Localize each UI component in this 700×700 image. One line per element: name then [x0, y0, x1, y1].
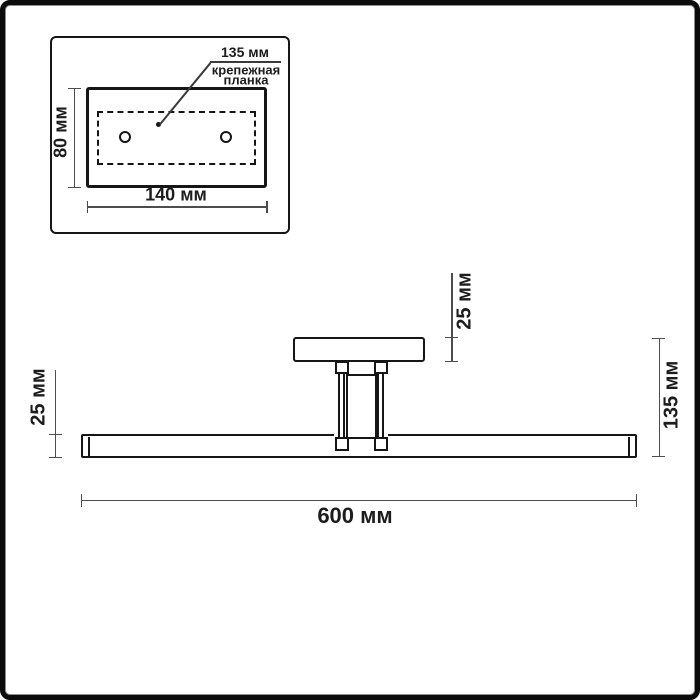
canopy: [293, 337, 425, 362]
dim-line: [87, 206, 267, 208]
bar-height-label: 25 мм: [28, 368, 51, 425]
dim-line: [451, 273, 453, 362]
dim-tick: [636, 494, 638, 507]
bracket-stem-right: [377, 373, 384, 439]
bracket-flange-top-left: [335, 361, 349, 374]
mounting-hole-left: [119, 131, 131, 143]
dim-line: [81, 500, 637, 502]
bar-endcap-right: [628, 437, 630, 456]
dim-line: [74, 88, 76, 188]
length-label: 600 мм: [317, 503, 392, 529]
hole-spacing-label: 135 мм: [221, 44, 269, 60]
bracket-stem-left: [338, 373, 345, 439]
bar-endcap-left: [88, 437, 90, 456]
plate-height-label: 80 мм: [51, 106, 72, 158]
dim-tick: [81, 494, 83, 507]
technical-drawing: 135 мм крепежная планка 80 мм 140 мм: [0, 0, 700, 700]
bracket-flange-bottom-right: [374, 437, 388, 451]
dim-tick: [445, 337, 458, 339]
canopy-depth-label: 25 мм: [454, 272, 477, 329]
mounting-hole-right: [220, 131, 232, 143]
mounting-plate-label: крепежная планка: [212, 66, 280, 85]
dim-tick: [652, 456, 665, 458]
dim-tick: [68, 187, 81, 189]
dim-line: [55, 370, 57, 458]
dim-tick: [266, 201, 268, 213]
dim-tick: [652, 338, 665, 340]
bracket-flange-bottom-left: [335, 437, 349, 451]
plate-width-label: 140 мм: [145, 185, 207, 206]
bracket-flange-top-right: [374, 361, 388, 374]
total-depth-label: 135 мм: [661, 361, 684, 430]
dim-tick: [49, 457, 62, 459]
dim-tick: [68, 88, 81, 90]
dim-tick: [49, 434, 62, 436]
dim-tick: [445, 361, 458, 363]
dim-tick: [87, 201, 89, 213]
bracket-center-plate: [346, 374, 377, 439]
